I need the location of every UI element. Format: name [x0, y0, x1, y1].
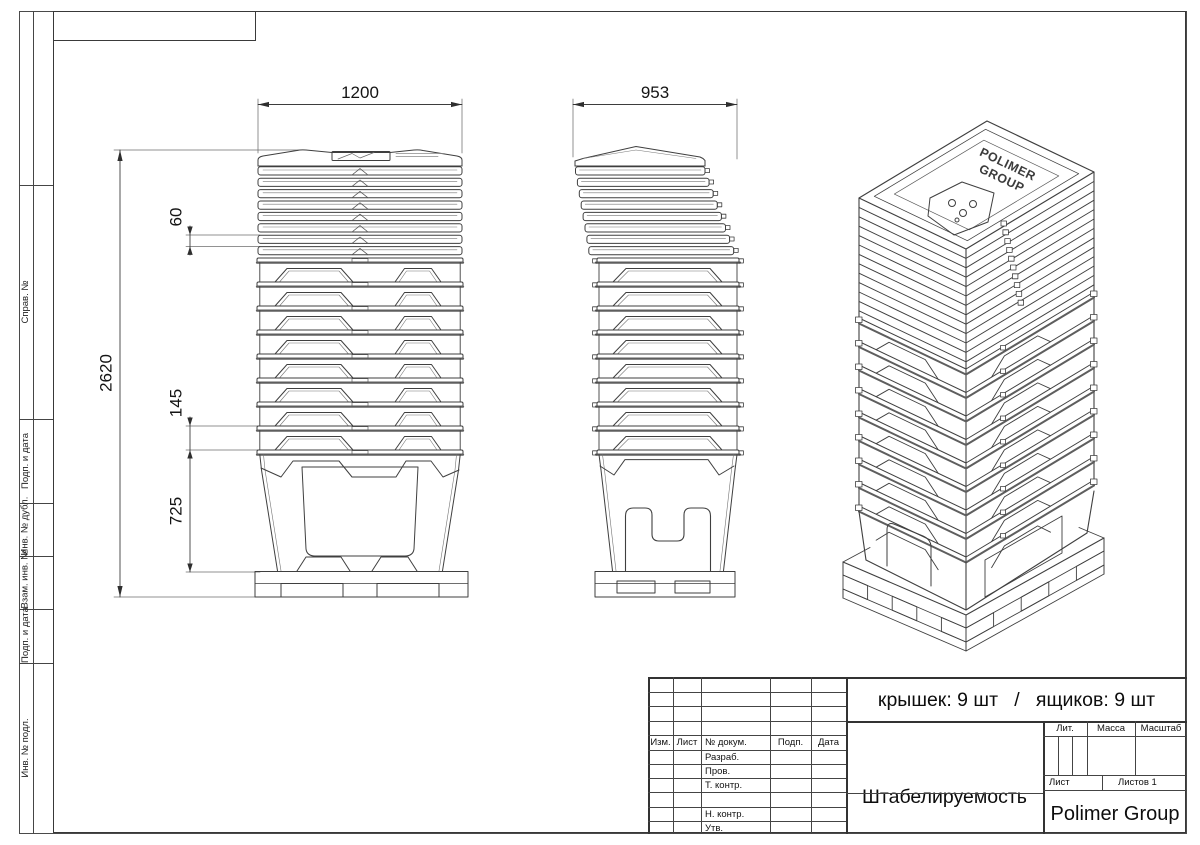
- col-podp: Подп.: [770, 737, 811, 748]
- quantity-note: крышек: 9 шт / ящиков: 9 шт: [846, 689, 1187, 712]
- company-name: Polimer Group: [1043, 803, 1187, 826]
- lit-label: Лит.: [1043, 723, 1087, 734]
- row-nkontr: Н. контр.: [705, 809, 744, 820]
- margin-label-inv-podl: Инв. № подл.: [19, 688, 33, 808]
- margin-label-vzam-inv: Взам. инв. №: [19, 556, 33, 609]
- margin-divider: [33, 11, 34, 834]
- title-block: Изм. Лист № докум. Подп. Дата Разраб. Пр…: [648, 677, 1187, 834]
- masshtab-label: Масштаб: [1135, 723, 1187, 734]
- col-dokum: № докум.: [705, 737, 747, 748]
- sheets-label: Листов 1: [1118, 777, 1157, 788]
- margin-label-podp-data-2: Подп. и дата: [19, 609, 33, 663]
- col-list: Лист: [673, 737, 701, 748]
- margin-label-inv-dubl: Инв. № дубл.: [19, 503, 33, 556]
- row-prov: Пров.: [705, 766, 730, 777]
- massa-label: Масса: [1087, 723, 1135, 734]
- sheet-label: Лист: [1049, 777, 1070, 788]
- margin-label-sprav: Справ. №: [19, 185, 33, 419]
- doc-title-line1: Штабелируемость: [846, 784, 1043, 810]
- row-tkontr: Т. контр.: [705, 780, 742, 791]
- row-razrab: Разраб.: [705, 752, 739, 763]
- col-data: Дата: [811, 737, 846, 748]
- row-utv: Утв.: [705, 823, 723, 834]
- col-izm: Изм.: [648, 737, 673, 748]
- margin-label-podp-data-1: Подп. и дата: [19, 419, 33, 503]
- drawing-sheet: 1200 953 2620 60 145 725: [0, 0, 1200, 845]
- top-left-stamp-box: [53, 11, 256, 41]
